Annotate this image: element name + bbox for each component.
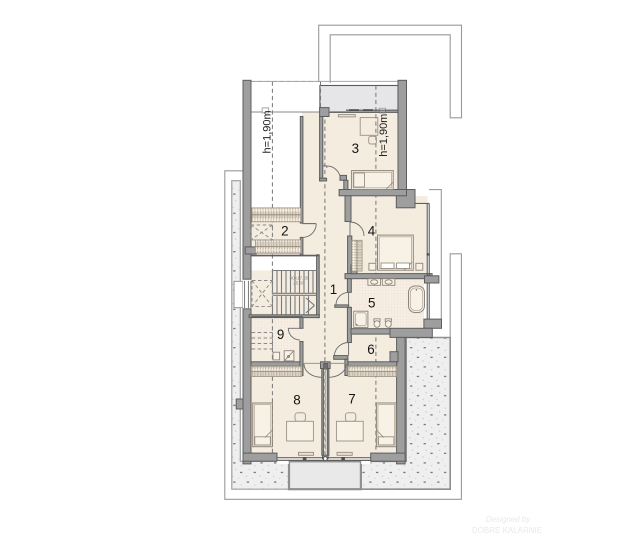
svg-text:Designed by: Designed by — [486, 515, 531, 524]
svg-text:25,08: 25,08 — [293, 281, 305, 286]
svg-text:h=1,90m: h=1,90m — [261, 110, 273, 153]
svg-text:2: 2 — [281, 224, 288, 239]
svg-text:8: 8 — [293, 393, 300, 408]
svg-text:5: 5 — [368, 296, 375, 311]
svg-text:9: 9 — [277, 327, 284, 342]
svg-text:6: 6 — [367, 342, 374, 357]
svg-text:h=1,90m: h=1,90m — [378, 114, 390, 157]
svg-text:4: 4 — [368, 224, 376, 239]
svg-text:3: 3 — [352, 141, 359, 156]
svg-text:7: 7 — [348, 392, 355, 407]
svg-text:DOBRE KALARNIE: DOBRE KALARNIE — [472, 526, 542, 535]
svg-text:1: 1 — [330, 282, 337, 297]
